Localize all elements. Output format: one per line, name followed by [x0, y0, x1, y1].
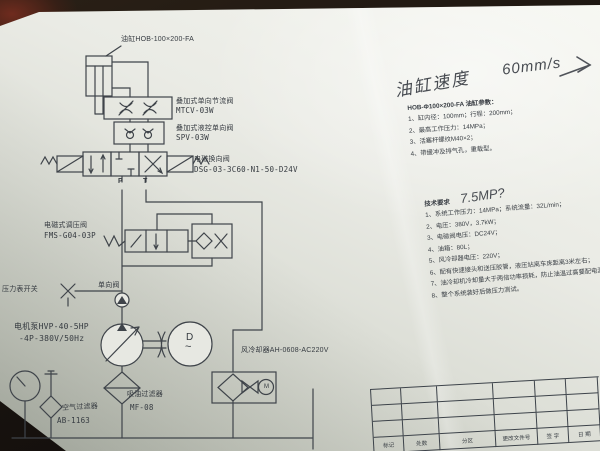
title-block-header-cell: 处数 — [404, 434, 441, 451]
title-block-cell — [567, 393, 600, 411]
check-valve-label: 单向阀 — [98, 282, 120, 290]
relief-valve-symbol — [104, 214, 232, 266]
level-gauge-symbol — [10, 371, 40, 438]
directional-valve-model: DSG-03-3C60-N1-50-D24V — [194, 166, 298, 174]
pipes — [75, 62, 313, 449]
title-block-table: 标记 处数 分区 更改文件号 签 字 日 期 — [370, 376, 600, 451]
title-block-cell — [373, 420, 404, 438]
pilot-check-valve-model: SPV-03W — [176, 134, 209, 142]
port-t-label: T — [143, 178, 147, 186]
title-block-cell — [535, 379, 567, 397]
title-block-cell — [568, 409, 600, 427]
title-block-cell — [371, 388, 402, 406]
directional-valve-name: 电磁换向阀 — [194, 156, 230, 164]
title-block-cell — [372, 404, 403, 422]
port-p-label: P — [118, 178, 123, 186]
check-valve-symbol — [115, 293, 129, 307]
suction-filter-name: 吸油过滤器 — [127, 391, 163, 399]
relief-valve-name: 电磁式调压阀 — [44, 222, 87, 230]
motor-wave: ~ — [185, 341, 192, 353]
air-filter-model: AB-1163 — [57, 417, 90, 425]
pilot-check-valve-name: 叠加式液控单向阀 — [176, 125, 234, 133]
title-block-header-cell: 分区 — [440, 431, 497, 450]
title-block-cell — [537, 411, 569, 429]
photo-of-hydraulic-schematic: 油缸HOB-100×200-FA 叠加式单向节流阀 MTCV-03W 叠加式液控… — [0, 0, 600, 451]
cylinder-parameters-block: HOB-Φ100×200-FA 油缸参数： 1、缸内径：100mm；行程：200… — [407, 95, 519, 159]
throttle-valve-model: MTCV-03W — [176, 107, 214, 115]
suction-filter-symbol — [104, 372, 140, 404]
cooler-label: 风冷却器AH-0608-AC220V — [241, 347, 329, 355]
fan-motor-letter: M — [264, 384, 269, 391]
suction-filter-model: MF-08 — [130, 404, 154, 412]
title-block-cell — [536, 395, 568, 413]
title-block-cell — [566, 377, 599, 395]
relief-valve-model: FMS-G04-03P — [44, 232, 96, 240]
pump-motor-symbol — [101, 322, 212, 366]
air-filter-symbol — [40, 371, 62, 438]
pressure-switch-symbol — [61, 284, 75, 306]
technical-requirements-block: 技术要求 1、系统工作压力：14MPa；系统流量：32L/min； 2、电压：3… — [424, 185, 600, 302]
title-block-header-cell: 签 字 — [537, 427, 569, 445]
pilot-check-valve-symbol — [114, 122, 164, 144]
directional-valve-symbol — [41, 152, 209, 176]
handwritten-arrow — [560, 57, 590, 76]
cylinder-label: 油缸HOB-100×200-FA — [121, 36, 194, 44]
pump-label-line2: -4P-380V/50Hz — [19, 335, 84, 344]
title-block-header-cell: 标记 — [374, 436, 405, 451]
throttle-valve-name: 叠加式单向节流阀 — [176, 98, 234, 106]
pressure-switch-label: 压力表开关 — [2, 286, 38, 294]
throttle-valve-symbol — [104, 97, 172, 119]
pump-label-line1: 电机泵HVP-40-5HP — [14, 323, 89, 332]
title-block-header-cell: 更改文件号 — [496, 429, 539, 447]
title-block-header-cell: 日 期 — [568, 425, 600, 443]
